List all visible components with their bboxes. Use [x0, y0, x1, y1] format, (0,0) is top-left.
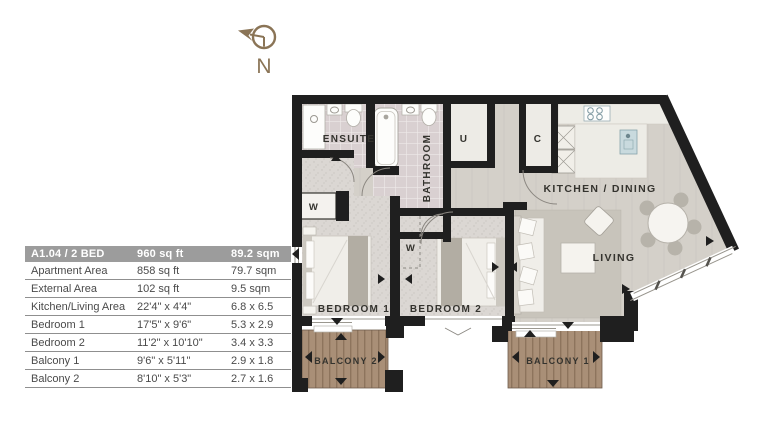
- toilet-icon: [347, 110, 361, 127]
- room-label-utility: U: [460, 134, 469, 145]
- kitchen-sink-icon: [620, 130, 637, 154]
- hob-icon: [584, 106, 610, 121]
- room-label-bathroom: BATHROOM: [422, 134, 433, 203]
- coffee-table-icon: [561, 243, 595, 273]
- bed1-icon: [303, 227, 371, 314]
- utility-cupboard: [447, 104, 487, 161]
- room-label-bedroom2: BEDROOM 2: [410, 304, 482, 315]
- room-label-cupboard: C: [534, 134, 543, 145]
- room-label-balcony2: BALCONY 2: [314, 356, 378, 366]
- room-label-balcony1: BALCONY 1: [526, 356, 590, 366]
- room-label-wardrobe2: W: [406, 243, 416, 254]
- room-label-wardrobe1: W: [309, 202, 319, 213]
- toilet-icon: [422, 109, 436, 126]
- room-label-bedroom1: BEDROOM 1: [318, 304, 390, 315]
- room-label-kitchen-dining: KITCHEN / DINING: [544, 183, 657, 195]
- floor-plan: ENSUITE BATHROOM U C W W KITCHEN / DININ…: [0, 0, 780, 426]
- room-label-ensuite: ENSUITE: [323, 134, 375, 145]
- shower-icon: [303, 105, 325, 149]
- bed2-icon: [437, 238, 505, 306]
- room-label-living: LIVING: [593, 252, 636, 264]
- floorplan-page: N A1.04 / 2 BED 960 sq ft 89.2 sqm Apart…: [0, 0, 780, 426]
- dining-table-icon: [648, 203, 688, 243]
